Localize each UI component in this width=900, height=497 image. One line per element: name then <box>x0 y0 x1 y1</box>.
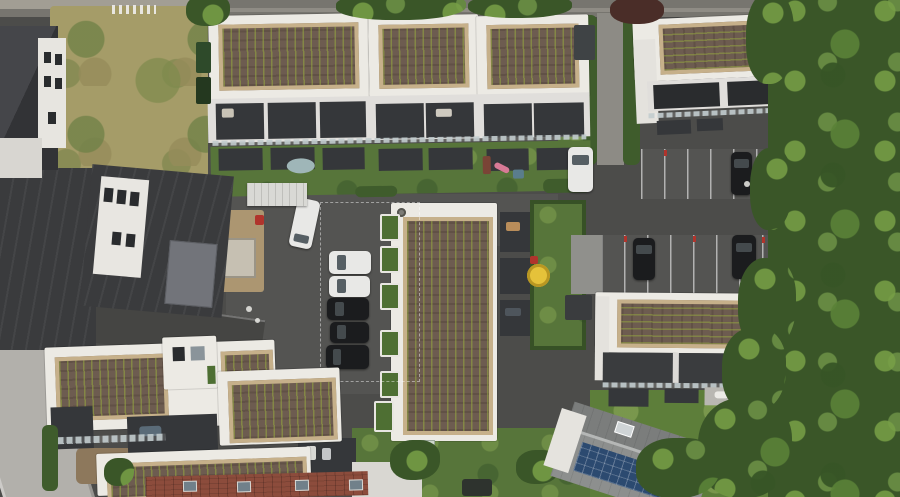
aerial-photo-estate <box>0 0 900 497</box>
garden-fence <box>112 5 156 14</box>
patio-furniture <box>436 109 452 117</box>
industrial-roof-west <box>0 168 96 350</box>
green-roof-block-2 <box>378 23 469 89</box>
hedge-west <box>42 425 58 491</box>
garden-shed-dark <box>462 479 492 496</box>
green-roof-block-1 <box>218 22 359 90</box>
gable-window <box>44 76 51 87</box>
paved-pad <box>571 235 602 294</box>
black-car-lower-lot-1 <box>633 238 655 280</box>
stall-marker-red <box>762 237 765 243</box>
garden-patio-1 <box>218 148 262 171</box>
garden-bush <box>104 458 134 486</box>
l-shaped-building <box>36 325 346 497</box>
townhouse-row <box>204 2 595 201</box>
gable-window <box>44 52 51 63</box>
gable-window <box>55 78 62 89</box>
balcony-recess-1 <box>653 82 720 109</box>
stall-marker-red <box>664 150 667 156</box>
yellow-parasol <box>527 264 550 287</box>
garden-patio-4 <box>378 148 422 171</box>
roof-skylight <box>184 482 196 491</box>
white-car-1 <box>329 251 371 274</box>
lawn-dry-patchy <box>50 6 208 192</box>
red-garden-toy <box>530 256 538 264</box>
patio-furniture <box>222 108 234 117</box>
green-waste-bin <box>196 42 211 73</box>
terrace-east-1 <box>500 212 530 252</box>
roof-skylight <box>296 481 308 490</box>
terrace <box>657 120 692 135</box>
garden-bush <box>390 440 440 480</box>
gable-window <box>111 232 121 246</box>
balcony-4 <box>376 103 425 139</box>
gable-window <box>48 112 56 124</box>
black-car-1 <box>327 298 369 320</box>
copper-beech-tree <box>610 0 664 24</box>
roof-skylight <box>238 482 250 491</box>
terrace <box>608 388 648 406</box>
footpath <box>597 13 624 165</box>
gable-window <box>116 190 126 205</box>
terrace <box>697 118 723 131</box>
balcony-3 <box>320 101 367 138</box>
white-car-2 <box>329 276 370 297</box>
terrace <box>664 389 698 403</box>
gable-window <box>103 188 113 203</box>
shed-roof-gray <box>164 240 217 308</box>
red-hydrant <box>255 215 264 225</box>
gable-window <box>129 192 139 207</box>
tree <box>636 438 720 497</box>
house-top-left-annex <box>0 138 42 178</box>
stall-marker-red <box>624 236 627 242</box>
stall-marker-red <box>693 236 696 242</box>
balcony-2 <box>268 102 317 139</box>
terrace-east-3 <box>500 300 530 336</box>
penthouse-skylight <box>190 346 204 360</box>
garden-hedge <box>355 186 397 198</box>
gable-window <box>125 234 135 248</box>
green-roof-block-3 <box>486 23 579 89</box>
tree <box>750 148 792 230</box>
balcony-6 <box>484 103 533 138</box>
garden-shed <box>574 25 595 60</box>
play-tower <box>483 156 491 174</box>
terrace-east-2 <box>500 258 530 294</box>
black-car-upper-lot <box>731 152 752 195</box>
balcony-5 <box>426 102 475 138</box>
facade-divider <box>673 353 679 383</box>
carport-canopy <box>247 183 307 206</box>
bin-shelter <box>565 295 592 320</box>
white-car-near-townhouses <box>568 147 593 192</box>
green-waste-bin <box>196 77 211 104</box>
planter-box <box>374 401 394 432</box>
roof-planter-strip <box>207 366 216 384</box>
patio-furniture <box>505 308 521 316</box>
manhole-cover <box>246 306 252 312</box>
garden-box <box>513 169 524 178</box>
garden-patio-3 <box>322 147 364 170</box>
tree <box>746 0 794 84</box>
green-roof-wing-3 <box>228 378 338 444</box>
garden-patio-5 <box>428 147 472 170</box>
penthouse-window <box>172 347 184 361</box>
roof-skylight <box>350 480 362 489</box>
patio-table <box>506 222 520 231</box>
balcony-7 <box>534 102 585 137</box>
gable-window <box>55 54 62 65</box>
manhole-cover <box>255 318 260 323</box>
